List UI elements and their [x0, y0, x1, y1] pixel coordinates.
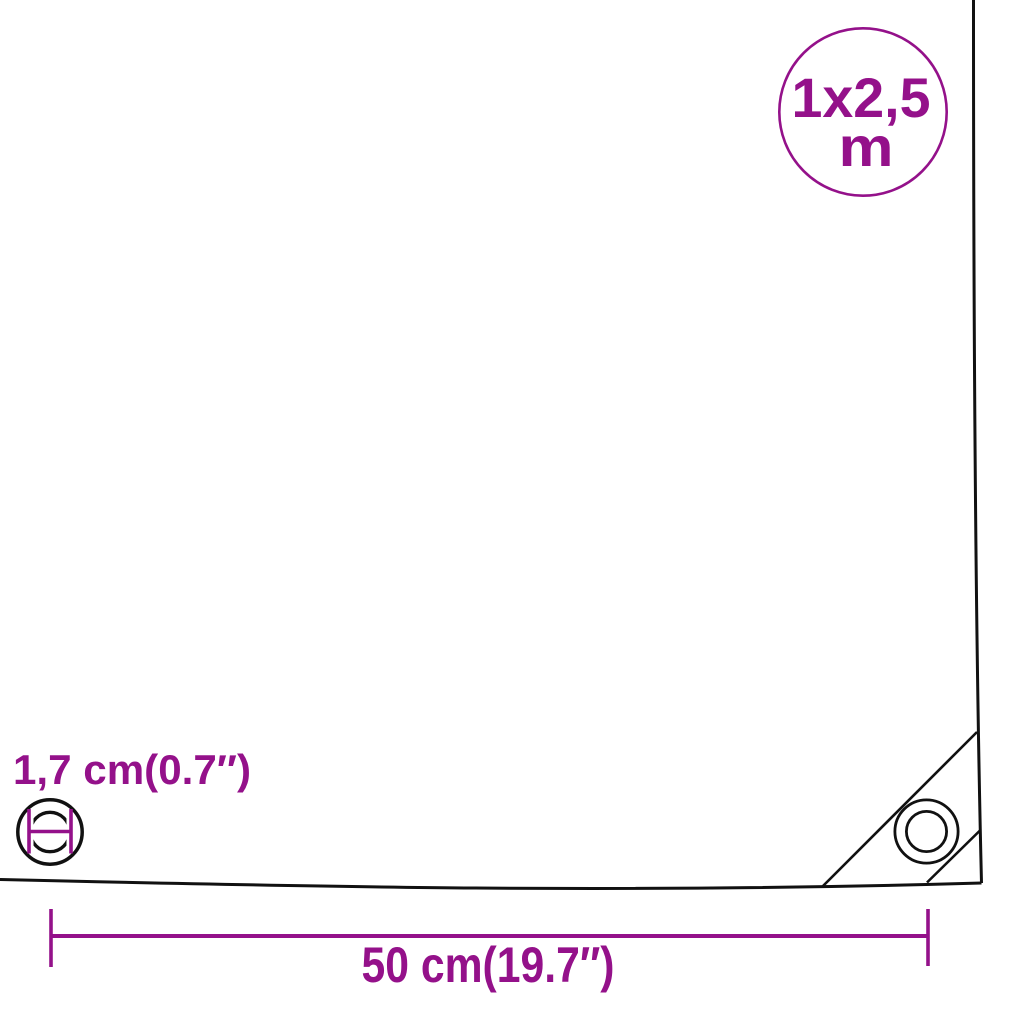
- svg-text:m: m: [839, 115, 894, 178]
- svg-text:1,7 cm(0.7″): 1,7 cm(0.7″): [13, 746, 251, 793]
- svg-text:50 cm(19.7″): 50 cm(19.7″): [362, 936, 615, 993]
